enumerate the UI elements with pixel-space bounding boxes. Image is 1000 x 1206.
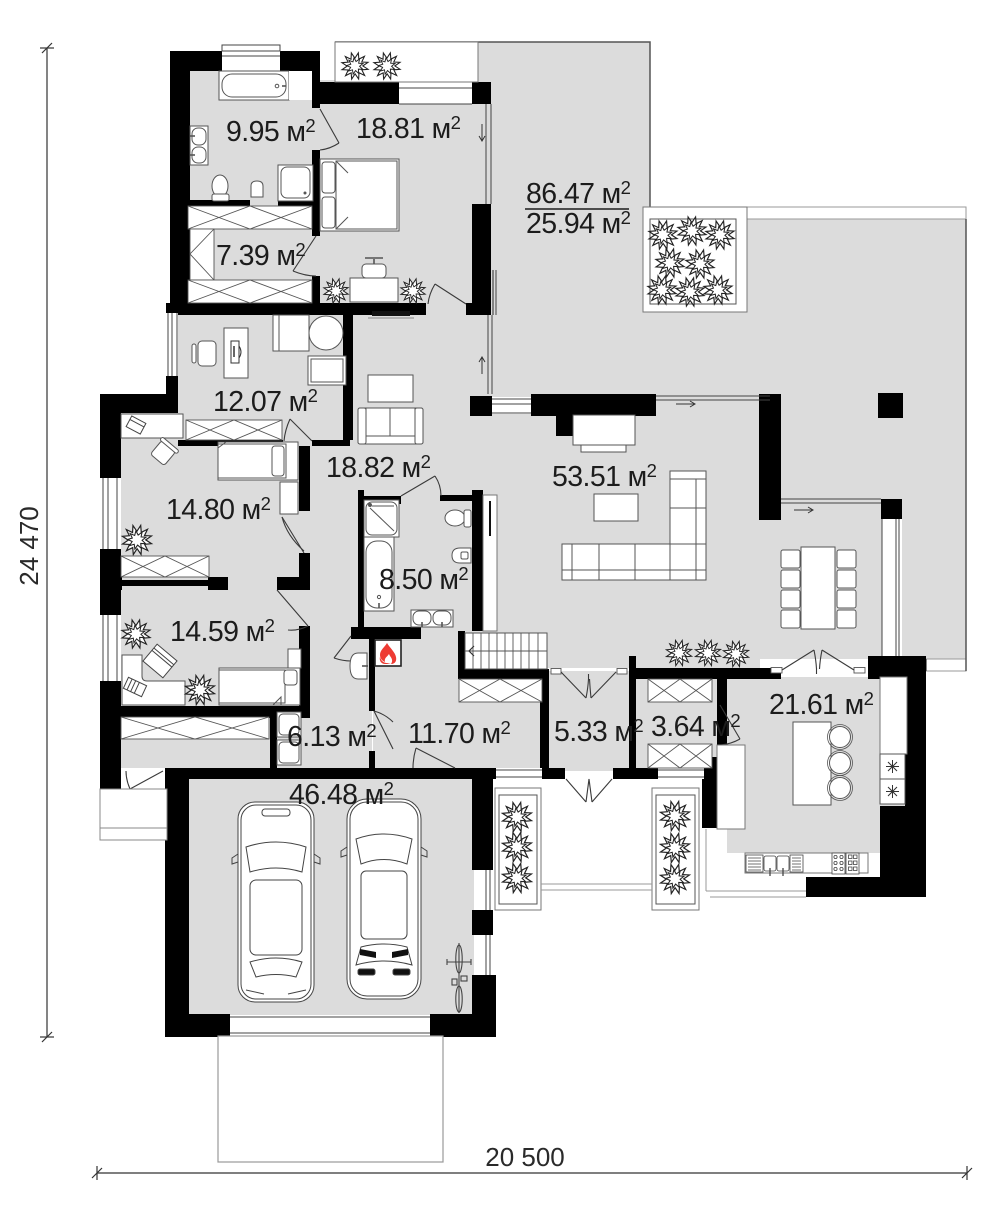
svg-text:6.13 м2: 6.13 м2: [287, 720, 377, 753]
svg-text:20 500: 20 500: [485, 1142, 565, 1172]
svg-text:18.81 м2: 18.81 м2: [356, 112, 461, 145]
svg-text:21.61 м2: 21.61 м2: [769, 688, 874, 721]
svg-text:24 470: 24 470: [14, 506, 44, 586]
svg-text:53.51 м2: 53.51 м2: [552, 460, 657, 493]
svg-text:46.48 м2: 46.48 м2: [289, 778, 394, 811]
svg-text:14.59 м2: 14.59 м2: [170, 615, 275, 648]
svg-text:5.33 м2: 5.33 м2: [554, 715, 644, 748]
svg-text:3.64 м2: 3.64 м2: [651, 710, 741, 743]
svg-text:12.07 м2: 12.07 м2: [213, 385, 318, 418]
svg-text:18.82 м2: 18.82 м2: [326, 451, 431, 484]
svg-text:8.50 м2: 8.50 м2: [379, 563, 469, 596]
svg-text:86.47 м2: 86.47 м2: [526, 177, 631, 210]
svg-text:11.70 м2: 11.70 м2: [408, 717, 511, 750]
svg-text:14.80 м2: 14.80 м2: [166, 493, 271, 526]
svg-text:25.94 м2: 25.94 м2: [526, 207, 631, 240]
svg-text:9.95 м2: 9.95 м2: [226, 115, 316, 148]
svg-text:7.39 м2: 7.39 м2: [216, 239, 306, 272]
